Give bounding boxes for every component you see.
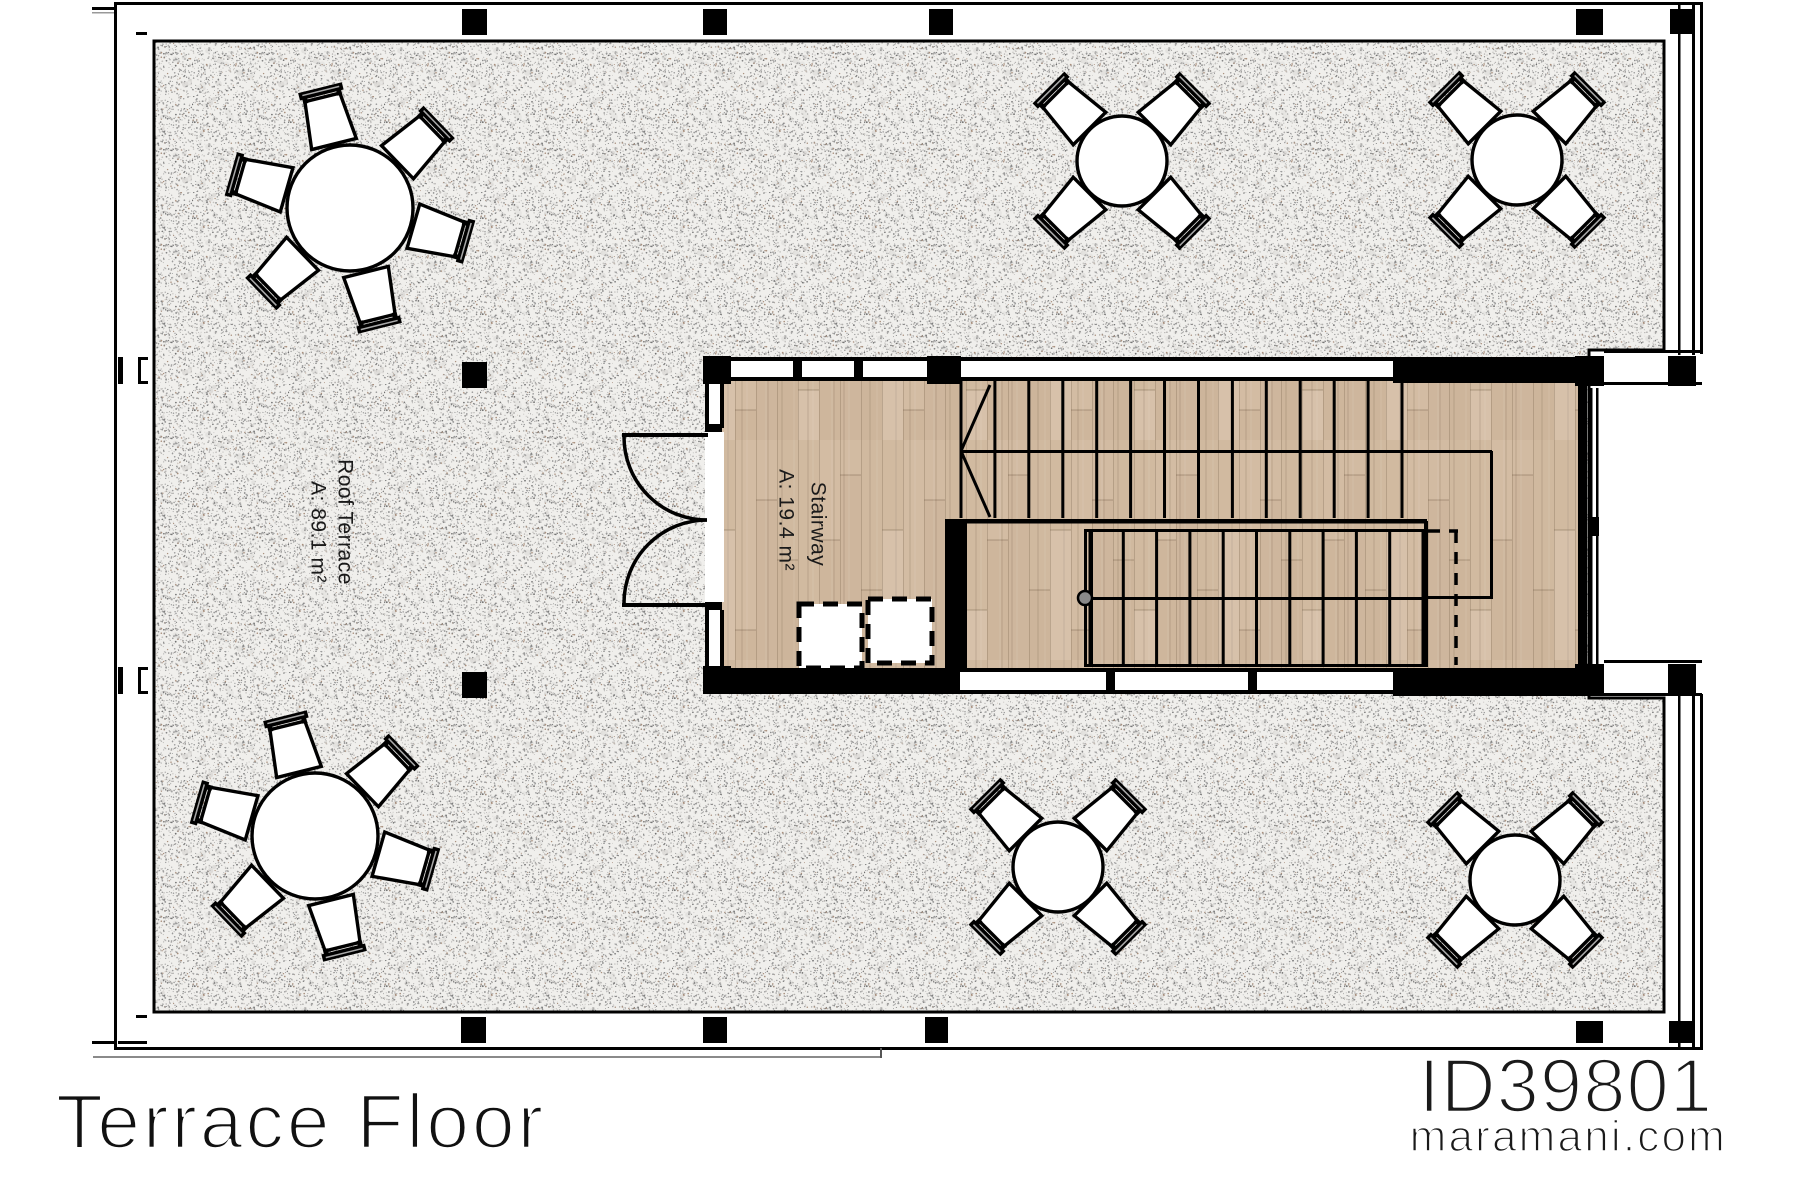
svg-text:Roof Terrace: Roof Terrace [334,459,357,585]
svg-text:maramani.com: maramani.com [1410,1112,1727,1161]
svg-text:A: 89.1 m²: A: 89.1 m² [307,481,330,583]
svg-text:Stairway: Stairway [807,482,830,567]
svg-text:Terrace Floor: Terrace Floor [56,1079,546,1165]
svg-text:A: 19.4 m²: A: 19.4 m² [775,469,798,571]
